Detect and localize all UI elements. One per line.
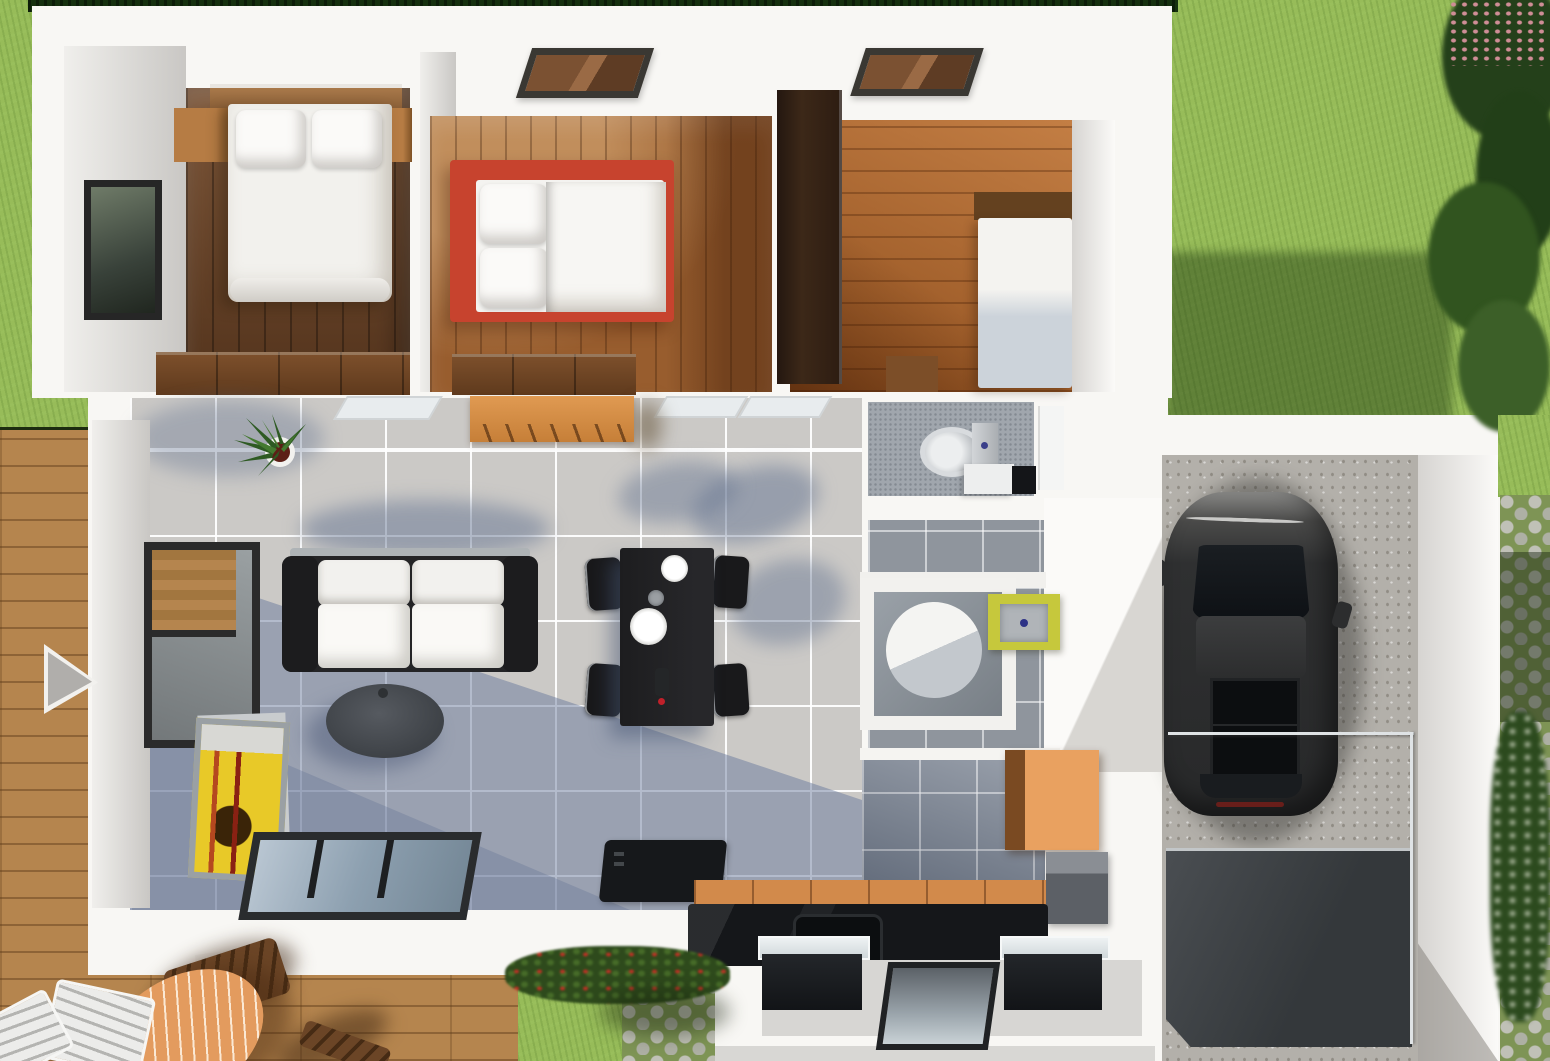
wc-window [1038,406,1064,490]
master-blanket-roll [230,278,390,302]
bush-east-3 [1490,712,1550,1022]
living-west-wall-face [92,420,150,908]
shrub-shadow [600,988,730,1036]
washbasin-drain [1020,619,1028,627]
dining-chair-top-right [710,555,750,609]
glass-floor-panel [238,832,482,920]
sofa-armrest-right [502,556,538,672]
bedroom3-bed [978,218,1072,388]
bowl [648,590,664,606]
potted-plant [228,414,308,482]
bottle-red-label [658,698,665,705]
car-windshield [1192,545,1310,619]
bedroom2-duvet [546,182,666,312]
island-right-body [1004,954,1102,1010]
bedroom2-pillow-top [480,184,548,244]
bedroom3-wardrobe [777,90,842,384]
blossom-specks [1448,0,1544,66]
toilet-cistern-button [981,442,988,449]
car-rear-window [1200,774,1302,798]
floor-hatch [876,962,1000,1050]
floor-plan-render [0,0,1550,1061]
deck-edge [0,427,98,430]
master-nightstand-left [174,108,234,162]
bedroom3-step [886,356,938,392]
master-pillow-left [236,110,306,168]
dining-chair-bottom-left [584,663,624,717]
lawn-east-of-garage [1498,415,1550,497]
bedroom3-east-wall-face [1072,120,1115,392]
master-pillow-right [312,110,382,168]
cabinet-orange-tall [1005,750,1099,850]
plate-small [661,555,688,582]
master-window [84,180,162,320]
bush-east-2 [1458,300,1550,432]
bedroom2-floor-shadow [666,116,772,392]
kitchen-orange-floor-strip [694,880,1046,906]
island-left-body [762,954,862,1010]
dining-chair-bottom-right [710,663,750,717]
bedroom2-skylight [516,48,654,98]
guard-rail-vertical [1410,732,1413,1044]
bathroom-sunlit-wall [1044,498,1162,772]
coffee-table-knob [378,688,388,698]
guard-rail-horizontal [1168,732,1414,735]
wc-ledge [964,464,1014,494]
sofa-seat-cushion-right [412,604,504,668]
sofa-back-cushion-left [318,560,410,606]
bedroom3-bed-headboard [974,192,1074,220]
sofa-seat-cushion-left [318,604,410,668]
car-sunroof [1210,678,1300,778]
sofa-back-cushion-right [412,560,504,606]
hall-door-left [333,396,443,420]
living-window-crossbar [152,630,236,637]
sofa-armrest-left [282,556,318,672]
wc-floor-opening [1012,466,1036,494]
hall-skylight-2 [738,396,833,418]
master-dresser [156,352,410,395]
bedroom3-skylight [850,48,984,96]
appliance-grey-box [1046,852,1108,924]
sideboard-slats [470,424,634,442]
bedroom2-pillow-bottom [480,248,548,308]
dining-chair-top-left [584,557,624,611]
garage-mat [1166,848,1412,1047]
path-east-shadow [1500,552,1550,722]
bottle [655,668,669,696]
lawn-shadow [1166,252,1452,422]
car-sunroof-divider [1213,724,1297,726]
living-window-pane-top [152,550,236,630]
sideboard-shadow [632,402,662,450]
hall-skylight-1 [654,396,749,418]
bedroom2-dresser [452,354,636,395]
plate-large [630,608,667,645]
car-taillights [1216,802,1284,807]
car-roof [1196,616,1306,678]
entry-mat-handle [614,852,624,856]
